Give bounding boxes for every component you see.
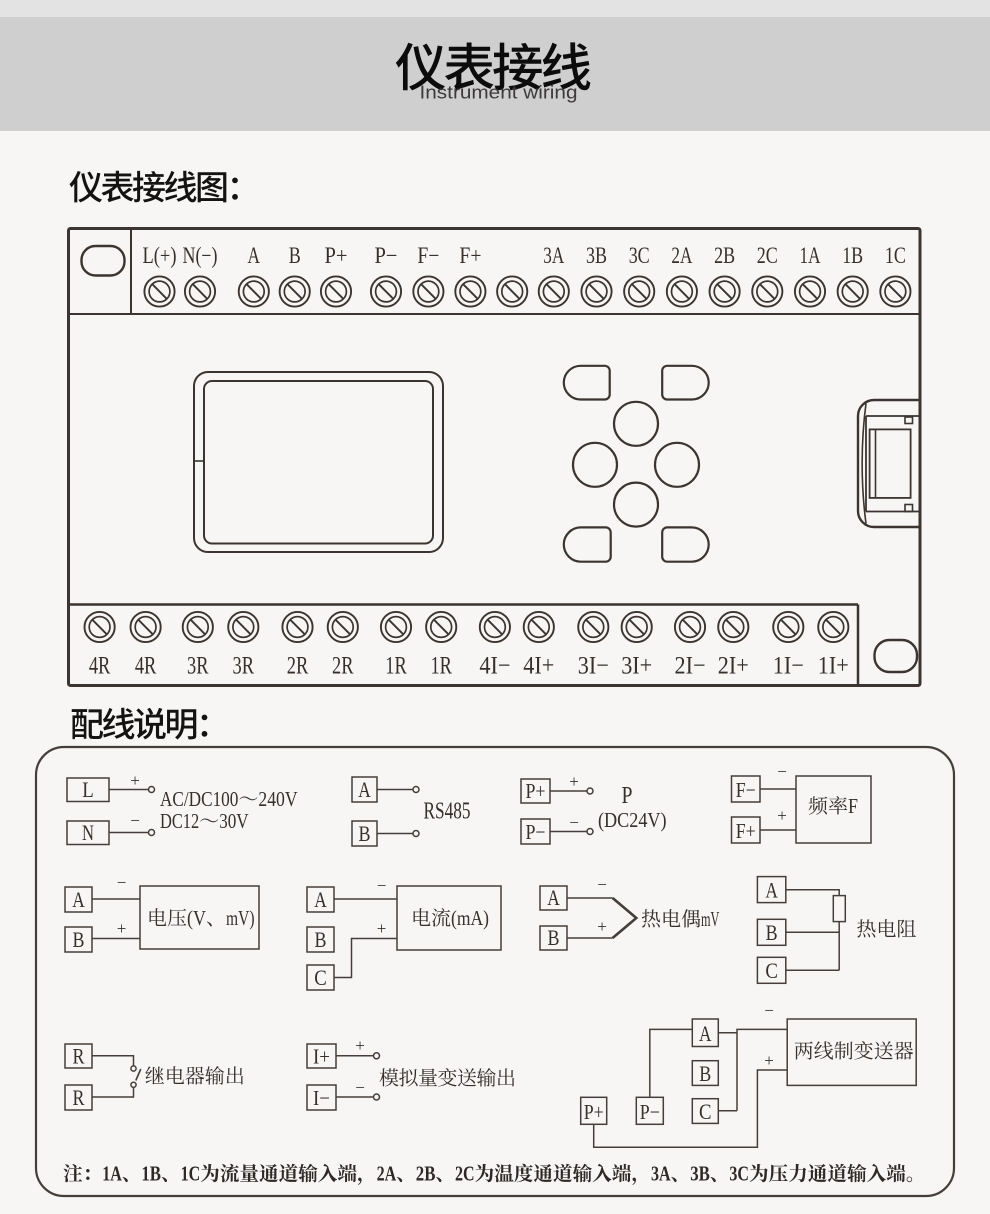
svg-text:2R: 2R bbox=[287, 653, 309, 680]
svg-text:(V: (V bbox=[187, 906, 206, 930]
svg-text:N(−): N(−) bbox=[183, 243, 218, 268]
svg-text:+: + bbox=[569, 772, 579, 791]
svg-text:R: R bbox=[73, 1085, 85, 1110]
svg-text:1C: 1C bbox=[181, 1162, 201, 1186]
svg-text:−: − bbox=[117, 873, 127, 892]
svg-text:−: − bbox=[597, 875, 607, 894]
svg-text:F−: F− bbox=[736, 778, 756, 802]
svg-text:C: C bbox=[765, 958, 778, 983]
svg-text:2I+: 2I+ bbox=[718, 653, 749, 680]
svg-text:+: + bbox=[764, 1051, 774, 1070]
svg-text:2B: 2B bbox=[714, 243, 735, 268]
svg-text:B: B bbox=[548, 925, 560, 950]
svg-text:R: R bbox=[73, 1044, 85, 1069]
svg-text:P+: P+ bbox=[584, 1100, 604, 1124]
svg-text:P+: P+ bbox=[325, 243, 348, 268]
svg-text:−: − bbox=[377, 876, 387, 895]
svg-text:C: C bbox=[314, 965, 327, 990]
svg-text:3I+: 3I+ bbox=[621, 653, 652, 680]
svg-text:F+: F+ bbox=[459, 243, 481, 268]
svg-text:B: B bbox=[73, 927, 85, 952]
svg-text:mV: mV bbox=[701, 907, 719, 931]
svg-text:(mA): (mA) bbox=[451, 906, 489, 930]
svg-text:F+: F+ bbox=[736, 819, 756, 843]
svg-text:DC12: DC12 bbox=[160, 809, 199, 833]
svg-text:3C: 3C bbox=[729, 1162, 749, 1186]
svg-text:−: − bbox=[777, 762, 787, 781]
svg-text:240V: 240V bbox=[258, 787, 297, 811]
svg-text:1R: 1R bbox=[430, 653, 452, 680]
svg-text:P−: P− bbox=[375, 243, 398, 268]
svg-text:3A: 3A bbox=[651, 1162, 671, 1186]
svg-text:A: A bbox=[72, 887, 85, 912]
svg-text:4R: 4R bbox=[135, 653, 157, 680]
svg-text:P: P bbox=[622, 783, 633, 809]
svg-text:2A: 2A bbox=[671, 243, 692, 268]
svg-text:A: A bbox=[358, 777, 371, 802]
svg-text:B: B bbox=[289, 243, 301, 268]
svg-text:2R: 2R bbox=[332, 653, 354, 680]
svg-text:Instrument wiring: Instrument wiring bbox=[420, 82, 578, 103]
svg-text:A: A bbox=[248, 243, 261, 268]
svg-text:3R: 3R bbox=[233, 653, 255, 680]
svg-text:2B: 2B bbox=[416, 1162, 436, 1186]
svg-text:AC/DC100: AC/DC100 bbox=[160, 787, 238, 811]
svg-text:B: B bbox=[699, 1061, 711, 1086]
svg-text:A: A bbox=[547, 885, 560, 910]
svg-text:mV): mV) bbox=[226, 906, 255, 930]
svg-text:+: + bbox=[377, 919, 387, 938]
svg-text:−: − bbox=[355, 1078, 365, 1097]
svg-text:3C: 3C bbox=[629, 243, 650, 268]
svg-text:+: + bbox=[117, 919, 127, 938]
svg-text:3A: 3A bbox=[543, 243, 564, 268]
svg-text:1B: 1B bbox=[842, 243, 863, 268]
svg-text:−: − bbox=[130, 811, 140, 830]
svg-text:+: + bbox=[777, 806, 787, 825]
svg-text:2C: 2C bbox=[757, 243, 778, 268]
svg-text:1B: 1B bbox=[141, 1162, 161, 1186]
svg-text:L(+): L(+) bbox=[143, 243, 177, 268]
svg-text:1I+: 1I+ bbox=[818, 653, 849, 680]
svg-text:F: F bbox=[848, 794, 858, 818]
svg-text:F−: F− bbox=[417, 243, 439, 268]
svg-text:I−: I− bbox=[313, 1086, 330, 1110]
svg-text:3R: 3R bbox=[187, 653, 209, 680]
svg-text:+: + bbox=[355, 1036, 365, 1055]
svg-text:RS485: RS485 bbox=[424, 799, 471, 825]
svg-text:2C: 2C bbox=[455, 1162, 475, 1186]
svg-text:1A: 1A bbox=[800, 243, 821, 268]
svg-text:−: − bbox=[764, 1001, 774, 1020]
svg-text:(DC24V): (DC24V) bbox=[598, 808, 667, 832]
svg-text:A: A bbox=[765, 878, 778, 903]
svg-text:P−: P− bbox=[640, 1100, 660, 1124]
svg-text:+: + bbox=[130, 771, 140, 790]
svg-text:L: L bbox=[82, 777, 94, 802]
svg-text:+: + bbox=[597, 917, 607, 936]
svg-text:4R: 4R bbox=[89, 653, 111, 680]
svg-text:4I+: 4I+ bbox=[523, 653, 554, 680]
svg-text:2A: 2A bbox=[377, 1162, 397, 1186]
svg-text:2I−: 2I− bbox=[675, 653, 706, 680]
svg-text:I+: I+ bbox=[313, 1045, 330, 1069]
svg-text:4I−: 4I− bbox=[479, 653, 510, 680]
svg-text:B: B bbox=[315, 927, 327, 952]
svg-text:B: B bbox=[766, 920, 778, 945]
svg-text:1I−: 1I− bbox=[773, 653, 804, 680]
svg-text:1A: 1A bbox=[102, 1162, 122, 1186]
svg-text:30V: 30V bbox=[219, 809, 248, 833]
svg-text:C: C bbox=[699, 1099, 712, 1124]
svg-text:3B: 3B bbox=[690, 1162, 710, 1186]
svg-text:3B: 3B bbox=[586, 243, 607, 268]
svg-text:P−: P− bbox=[526, 820, 546, 844]
svg-text:N: N bbox=[82, 820, 94, 845]
svg-text:3I−: 3I− bbox=[578, 653, 609, 680]
svg-text:B: B bbox=[359, 821, 371, 846]
svg-text:−: − bbox=[569, 813, 579, 832]
svg-text:1R: 1R bbox=[385, 653, 407, 680]
svg-text:A: A bbox=[314, 887, 327, 912]
svg-text:A: A bbox=[699, 1021, 712, 1046]
svg-text:1C: 1C bbox=[885, 243, 906, 268]
svg-text:P+: P+ bbox=[526, 779, 546, 803]
